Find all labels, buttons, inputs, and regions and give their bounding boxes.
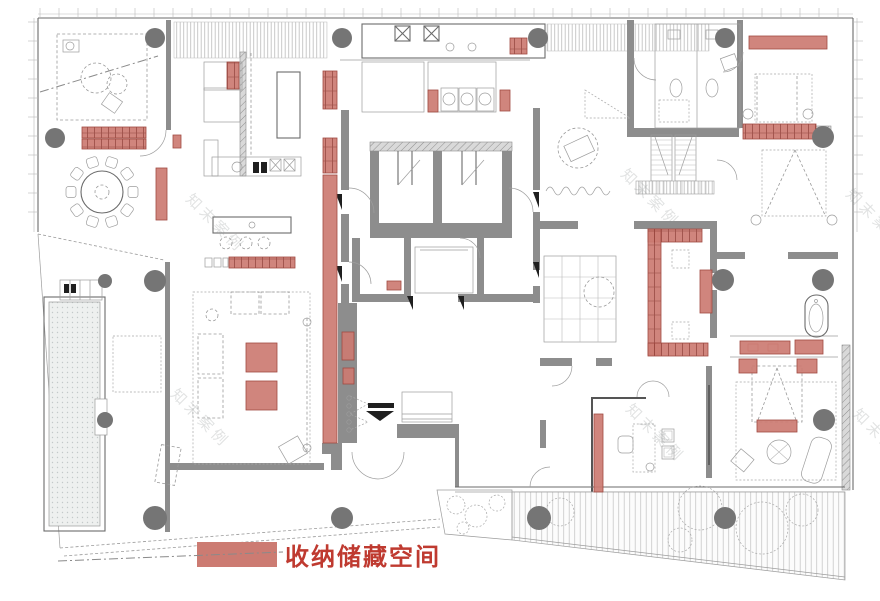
swimming-pool [44, 280, 181, 531]
column [715, 28, 735, 48]
column [45, 128, 65, 148]
floor-plan: 知末案例知末案例知末案例知末案例知末案例知末案例 收纳储藏空间 [0, 0, 880, 601]
storage-area [343, 368, 354, 384]
legend: 收纳储藏空间 [58, 542, 441, 571]
bedroom-top-right [720, 54, 813, 122]
storage-area [594, 414, 603, 492]
storage-area [323, 175, 337, 443]
storage-area [82, 139, 146, 149]
column [712, 269, 734, 291]
lounge-suite [40, 34, 158, 120]
column [98, 274, 112, 288]
storage-area [156, 168, 167, 220]
storage-area [428, 90, 438, 112]
storage-area [757, 420, 797, 432]
column [332, 28, 352, 48]
watermark-text: 知末案例 [849, 405, 880, 471]
storage-area [749, 36, 827, 49]
storage-area [700, 270, 712, 313]
column [812, 269, 834, 291]
storage-area [229, 257, 295, 268]
column [143, 506, 167, 530]
storage-area [740, 341, 790, 354]
watermark-text: 知末案例 [167, 385, 233, 451]
storage-area [387, 281, 401, 290]
watermark-text: 知末案例 [622, 400, 688, 466]
floor-plan-canvas: 知末案例知末案例知末案例知末案例知末案例知末案例 收纳储藏空间 [0, 0, 880, 601]
column [813, 409, 835, 431]
bedroom-mid-right [751, 150, 837, 225]
storage-area [246, 381, 277, 410]
column [528, 28, 548, 48]
column [144, 270, 166, 292]
column [527, 506, 551, 530]
storage-area [227, 62, 239, 89]
laundry-machines [441, 88, 494, 111]
master-suite [731, 295, 836, 485]
watermark-text: 知末案例 [842, 185, 880, 251]
structural-columns [45, 28, 835, 530]
furniture [40, 24, 845, 580]
storage-area [648, 343, 708, 356]
watermark-text: 知末案例 [182, 190, 248, 256]
storage-area [173, 135, 181, 148]
storage-area [342, 332, 354, 360]
storage-area [246, 343, 277, 372]
column [714, 507, 736, 529]
walkin-closet [672, 250, 689, 339]
legend-swatch [197, 542, 277, 567]
family-room [544, 256, 616, 342]
column [331, 507, 353, 529]
storage-area [323, 138, 337, 173]
storage-area [739, 359, 757, 373]
storage-area [797, 359, 817, 373]
storage-area [500, 90, 510, 111]
legend-label: 收纳储藏空间 [285, 543, 441, 571]
column [145, 28, 165, 48]
storage-area [82, 127, 146, 138]
storage-area [795, 340, 823, 354]
bedroom-top-center [546, 90, 630, 195]
garden [437, 490, 512, 540]
storage-area [743, 124, 816, 139]
storage-area [323, 71, 337, 109]
column [97, 412, 113, 428]
terrace-deck [512, 486, 845, 580]
dining-table [66, 156, 138, 228]
column [812, 126, 834, 148]
storage-area [648, 229, 661, 355]
storage-area [510, 38, 527, 54]
